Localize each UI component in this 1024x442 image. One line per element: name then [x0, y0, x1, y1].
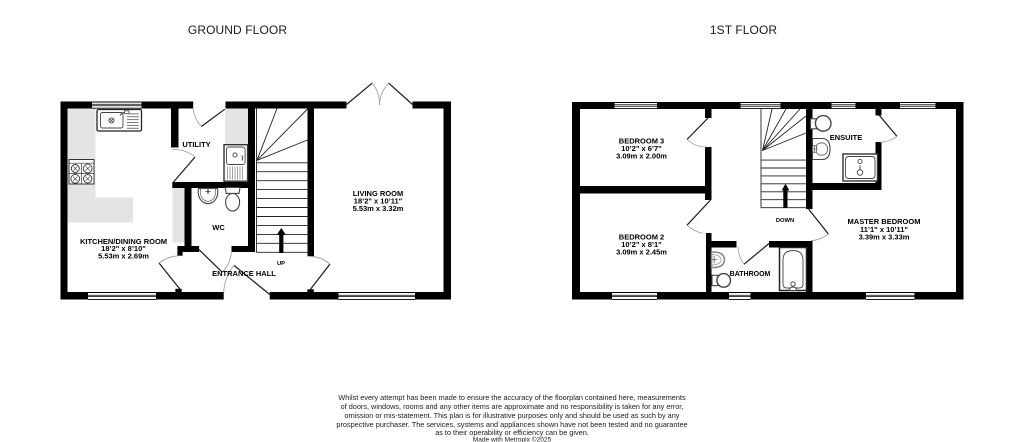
- svg-text:omission or mis-statement. Thi: omission or mis-statement. This plan is …: [345, 411, 680, 420]
- svg-text:BATHROOM: BATHROOM: [730, 271, 771, 278]
- svg-text:ENTRANCE HALL: ENTRANCE HALL: [212, 269, 276, 278]
- svg-text:3.09m x 2.00m: 3.09m x 2.00m: [616, 152, 667, 161]
- svg-text:5.53m x 3.32m: 5.53m x 3.32m: [353, 204, 404, 213]
- svg-text:GROUND FLOOR: GROUND FLOOR: [188, 23, 287, 37]
- svg-text:5.53m x 2.69m: 5.53m x 2.69m: [98, 252, 149, 261]
- svg-text:1ST FLOOR: 1ST FLOOR: [710, 23, 778, 37]
- svg-text:3.09m x 2.45m: 3.09m x 2.45m: [616, 247, 667, 256]
- svg-text:Whilst every attempt has been: Whilst every attempt has been made to en…: [338, 393, 686, 402]
- svg-text:3.39m x 3.33m: 3.39m x 3.33m: [859, 232, 910, 241]
- svg-text:WC: WC: [212, 223, 225, 232]
- svg-text:DOWN: DOWN: [776, 218, 794, 224]
- svg-text:Made with Metropix ©2025: Made with Metropix ©2025: [473, 435, 552, 442]
- svg-text:UTILITY: UTILITY: [182, 140, 210, 149]
- svg-text:ENSUITE: ENSUITE: [830, 133, 863, 142]
- svg-text:of doors, windows, rooms and a: of doors, windows, rooms and any other i…: [341, 402, 684, 411]
- svg-text:UP: UP: [277, 261, 285, 267]
